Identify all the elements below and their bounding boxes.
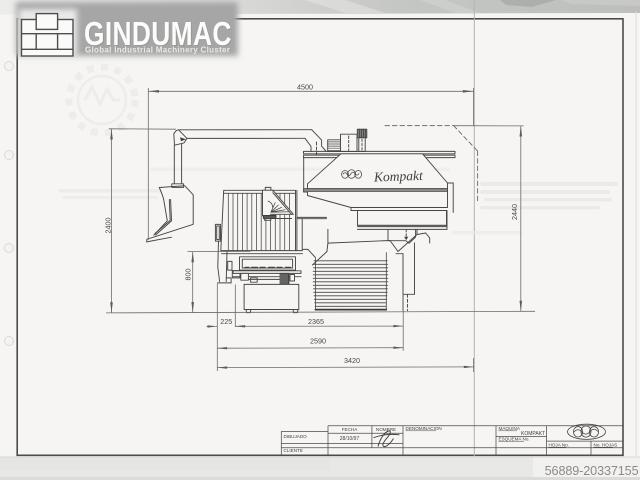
svg-text:HOJA No.: HOJA No. [549,442,569,447]
svg-text:3420: 3420 [344,356,360,365]
svg-text:4500: 4500 [297,83,313,92]
svg-text:56889-20337155: 56889-20337155 [545,464,639,478]
svg-text:2590: 2590 [310,337,326,346]
svg-text:225: 225 [220,317,232,326]
svg-text:No. HOJAS: No. HOJAS [594,442,618,447]
svg-text:ESQUEMA No.: ESQUEMA No. [499,437,530,442]
svg-text:28/10/97: 28/10/97 [340,436,360,442]
svg-text:NOMBRE: NOMBRE [376,427,396,432]
svg-text:Kompakt: Kompakt [373,168,424,185]
svg-text:MAQUINA: MAQUINA [499,426,521,431]
svg-text:DENOMINACION: DENOMINACION [406,426,442,431]
svg-text:2365: 2365 [308,317,324,326]
svg-text:800: 800 [184,269,193,281]
svg-text:2440: 2440 [510,204,519,220]
svg-text:CLIENTE: CLIENTE [284,448,303,453]
svg-text:Global Industrial Machinery Cl: Global Industrial Machinery Cluster [85,45,231,54]
svg-text:DIBUJADO: DIBUJADO [284,434,308,439]
svg-text:2400: 2400 [103,218,112,234]
svg-text:FECHA: FECHA [342,427,359,432]
